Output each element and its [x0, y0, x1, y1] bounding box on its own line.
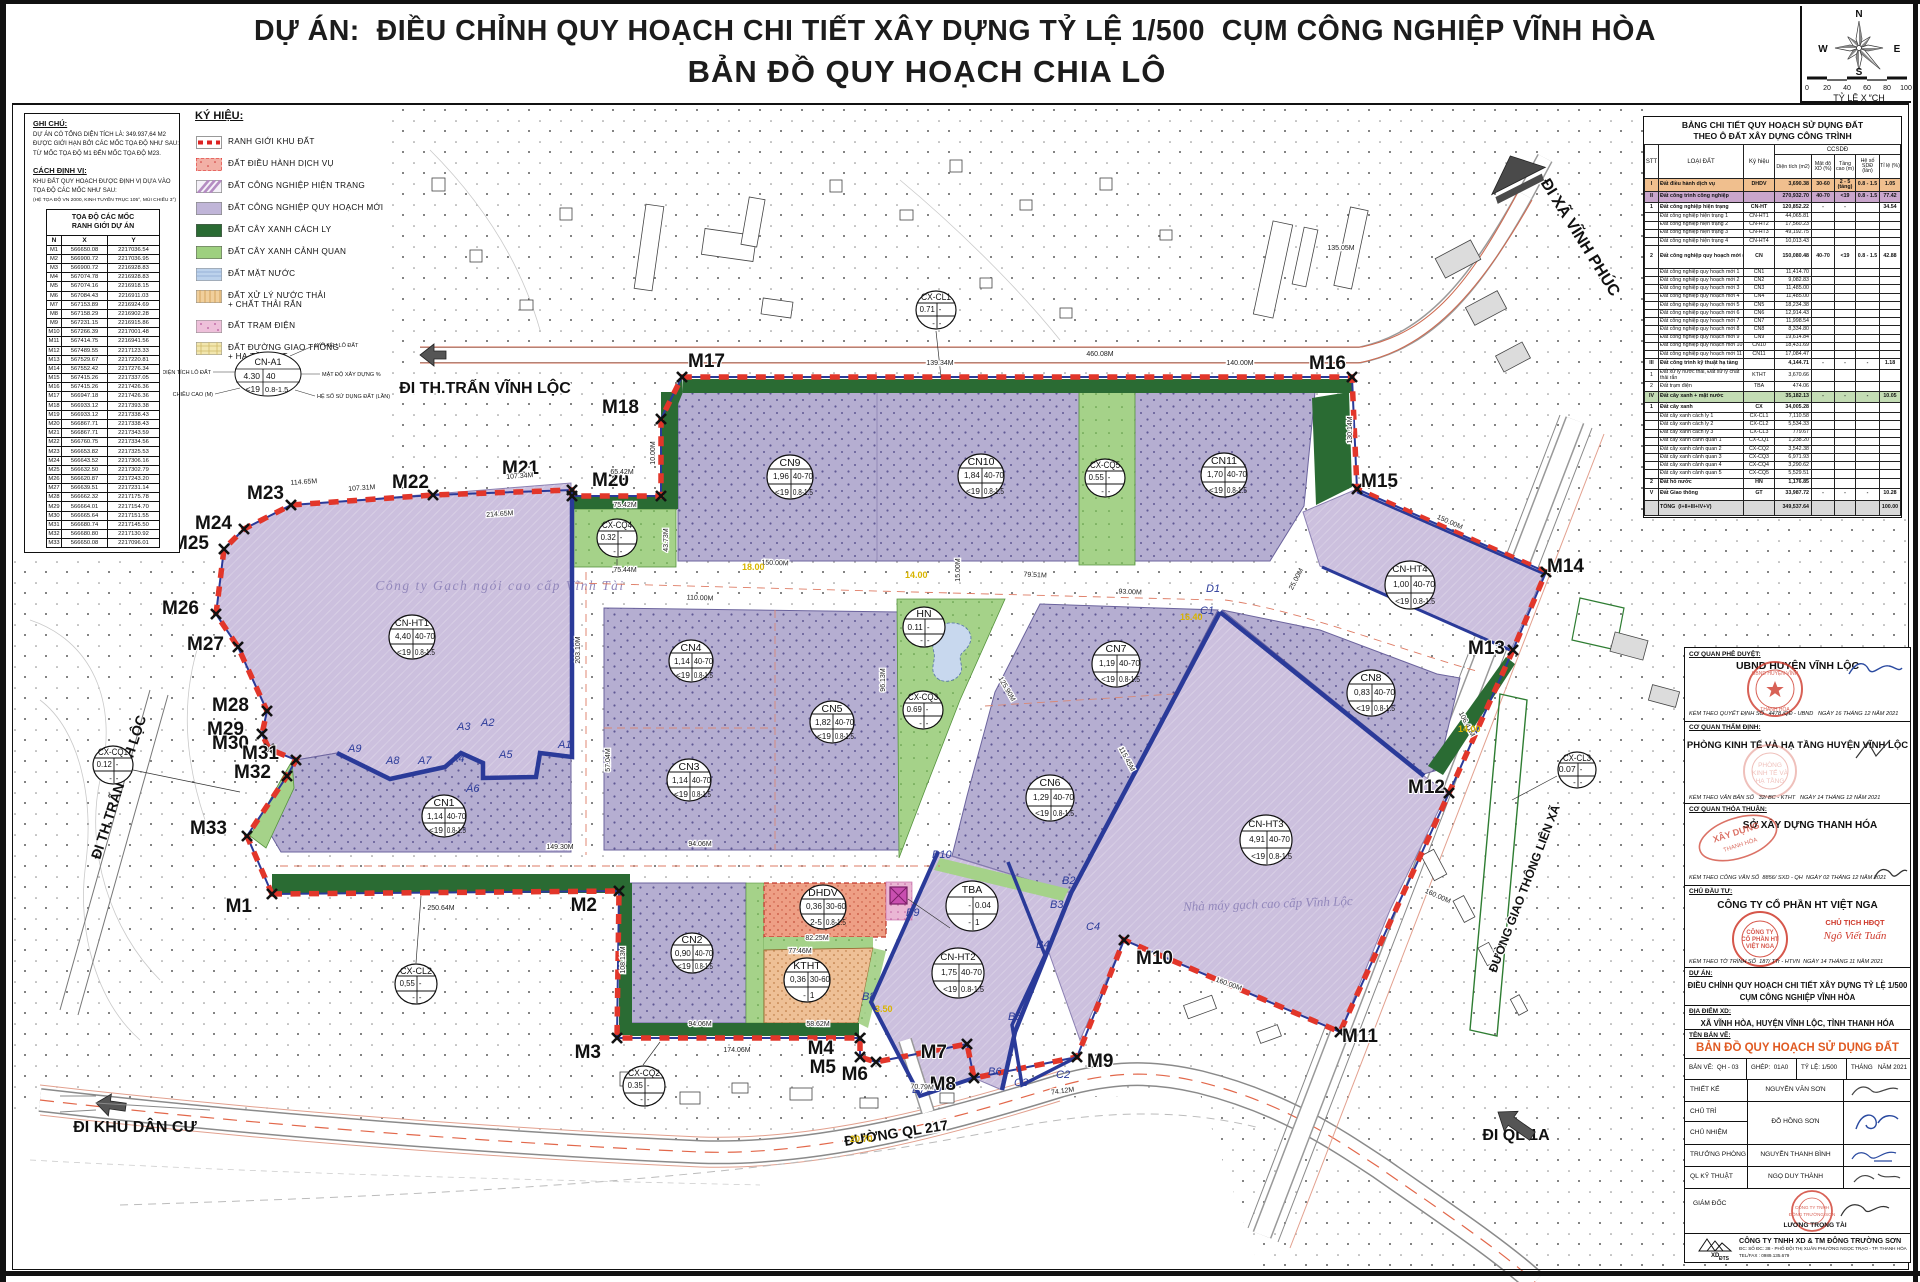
svg-text:HỆ SỐ SỬ DỤNG ĐẤT (LẦN): HỆ SỐ SỬ DỤNG ĐẤT (LẦN) — [317, 392, 390, 400]
svg-text:60: 60 — [1863, 85, 1871, 92]
svg-text:80: 80 — [1883, 85, 1891, 92]
svg-text:CÔNG TY TNHH: CÔNG TY TNHH — [1795, 1204, 1829, 1210]
svg-text:0: 0 — [1805, 85, 1809, 92]
svg-text:CỔ PHẦN HT: CỔ PHẦN HT — [1741, 936, 1779, 943]
svg-text:N: N — [1855, 9, 1862, 20]
svg-text:CN-A1: CN-A1 — [254, 357, 281, 367]
svg-text:S: S — [1856, 67, 1863, 78]
svg-text:PHÒNG: PHÒNG — [1758, 760, 1782, 769]
svg-text:W: W — [1818, 44, 1828, 55]
svg-text:ĐTS: ĐTS — [1719, 1256, 1730, 1261]
svg-text:E: E — [1894, 44, 1901, 55]
svg-text:20: 20 — [1823, 85, 1831, 92]
svg-text:40: 40 — [1843, 85, 1851, 92]
svg-text:0.8-1.5: 0.8-1.5 — [265, 385, 288, 394]
svg-text:ĐÔNG TRƯỜNG SƠN: ĐÔNG TRƯỜNG SƠN — [1789, 1211, 1835, 1217]
svg-text:VIỆT NGA: VIỆT NGA — [1746, 942, 1775, 950]
svg-text:MẬT ĐỘ XÂY DỰNG %: MẬT ĐỘ XÂY DỰNG % — [322, 371, 381, 378]
svg-text:DIỆN TÍCH LÔ ĐẤT: DIỆN TÍCH LÔ ĐẤT — [163, 368, 212, 376]
svg-text:UBND HUYỆN VĨNH: UBND HUYỆN VĨNH — [1752, 669, 1799, 677]
svg-text:4.30: 4.30 — [243, 371, 260, 381]
svg-text:<19: <19 — [246, 384, 261, 394]
svg-text:CÔNG TY: CÔNG TY — [1746, 928, 1773, 936]
svg-text:KÝ HIỆU LÔ ĐẤT: KÝ HIỆU LÔ ĐẤT — [315, 341, 359, 349]
svg-text:CHIỀU CAO (M): CHIỀU CAO (M) — [173, 391, 214, 398]
svg-text:40: 40 — [266, 371, 276, 381]
svg-text:TỶ LỆ X ″CH: TỶ LỆ X ″CH — [1833, 92, 1885, 103]
svg-text:100: 100 — [1900, 85, 1912, 92]
